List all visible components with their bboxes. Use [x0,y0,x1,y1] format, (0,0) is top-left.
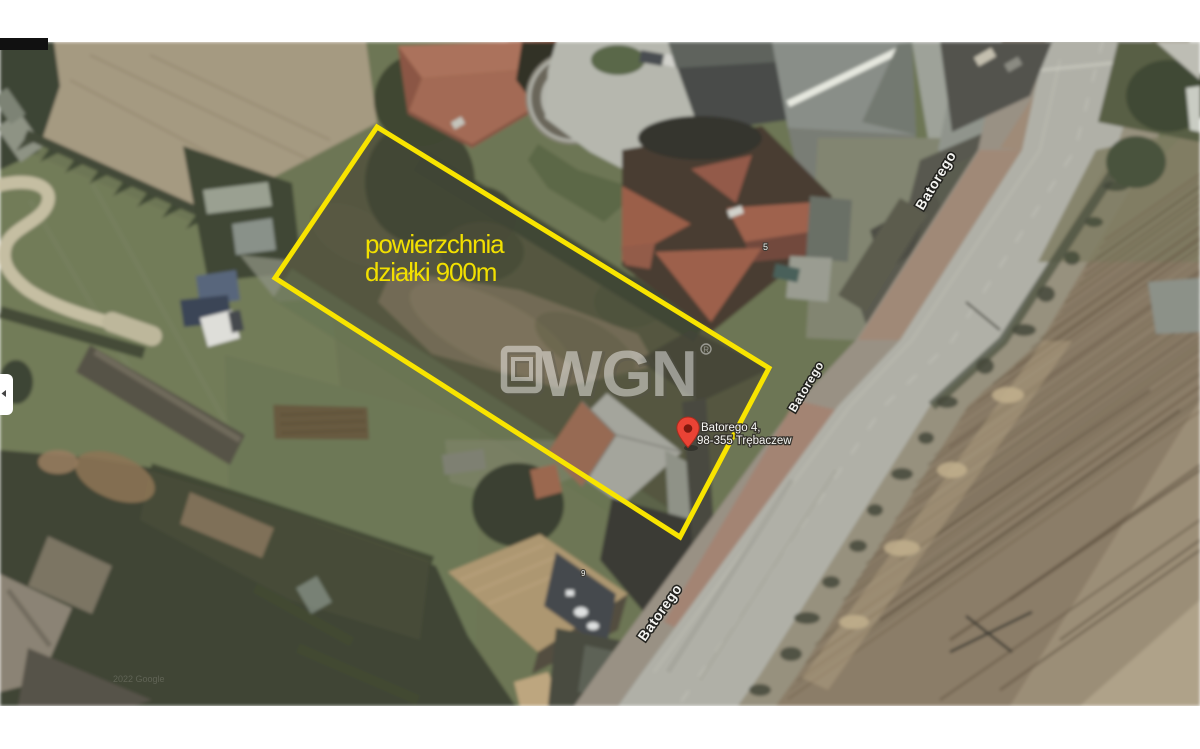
svg-text:działki 900m: działki 900m [365,257,496,287]
svg-text:5: 5 [763,242,768,252]
svg-text:98-355 Trębaczew: 98-355 Trębaczew [697,435,792,447]
svg-text:WGN: WGN [541,337,697,410]
svg-text:Batorego 4,: Batorego 4, [701,422,760,434]
svg-text:R: R [703,346,709,355]
svg-text:2022 Google: 2022 Google [113,674,165,684]
svg-text:powierzchnia: powierzchnia [365,229,505,259]
svg-text:9: 9 [581,569,586,578]
